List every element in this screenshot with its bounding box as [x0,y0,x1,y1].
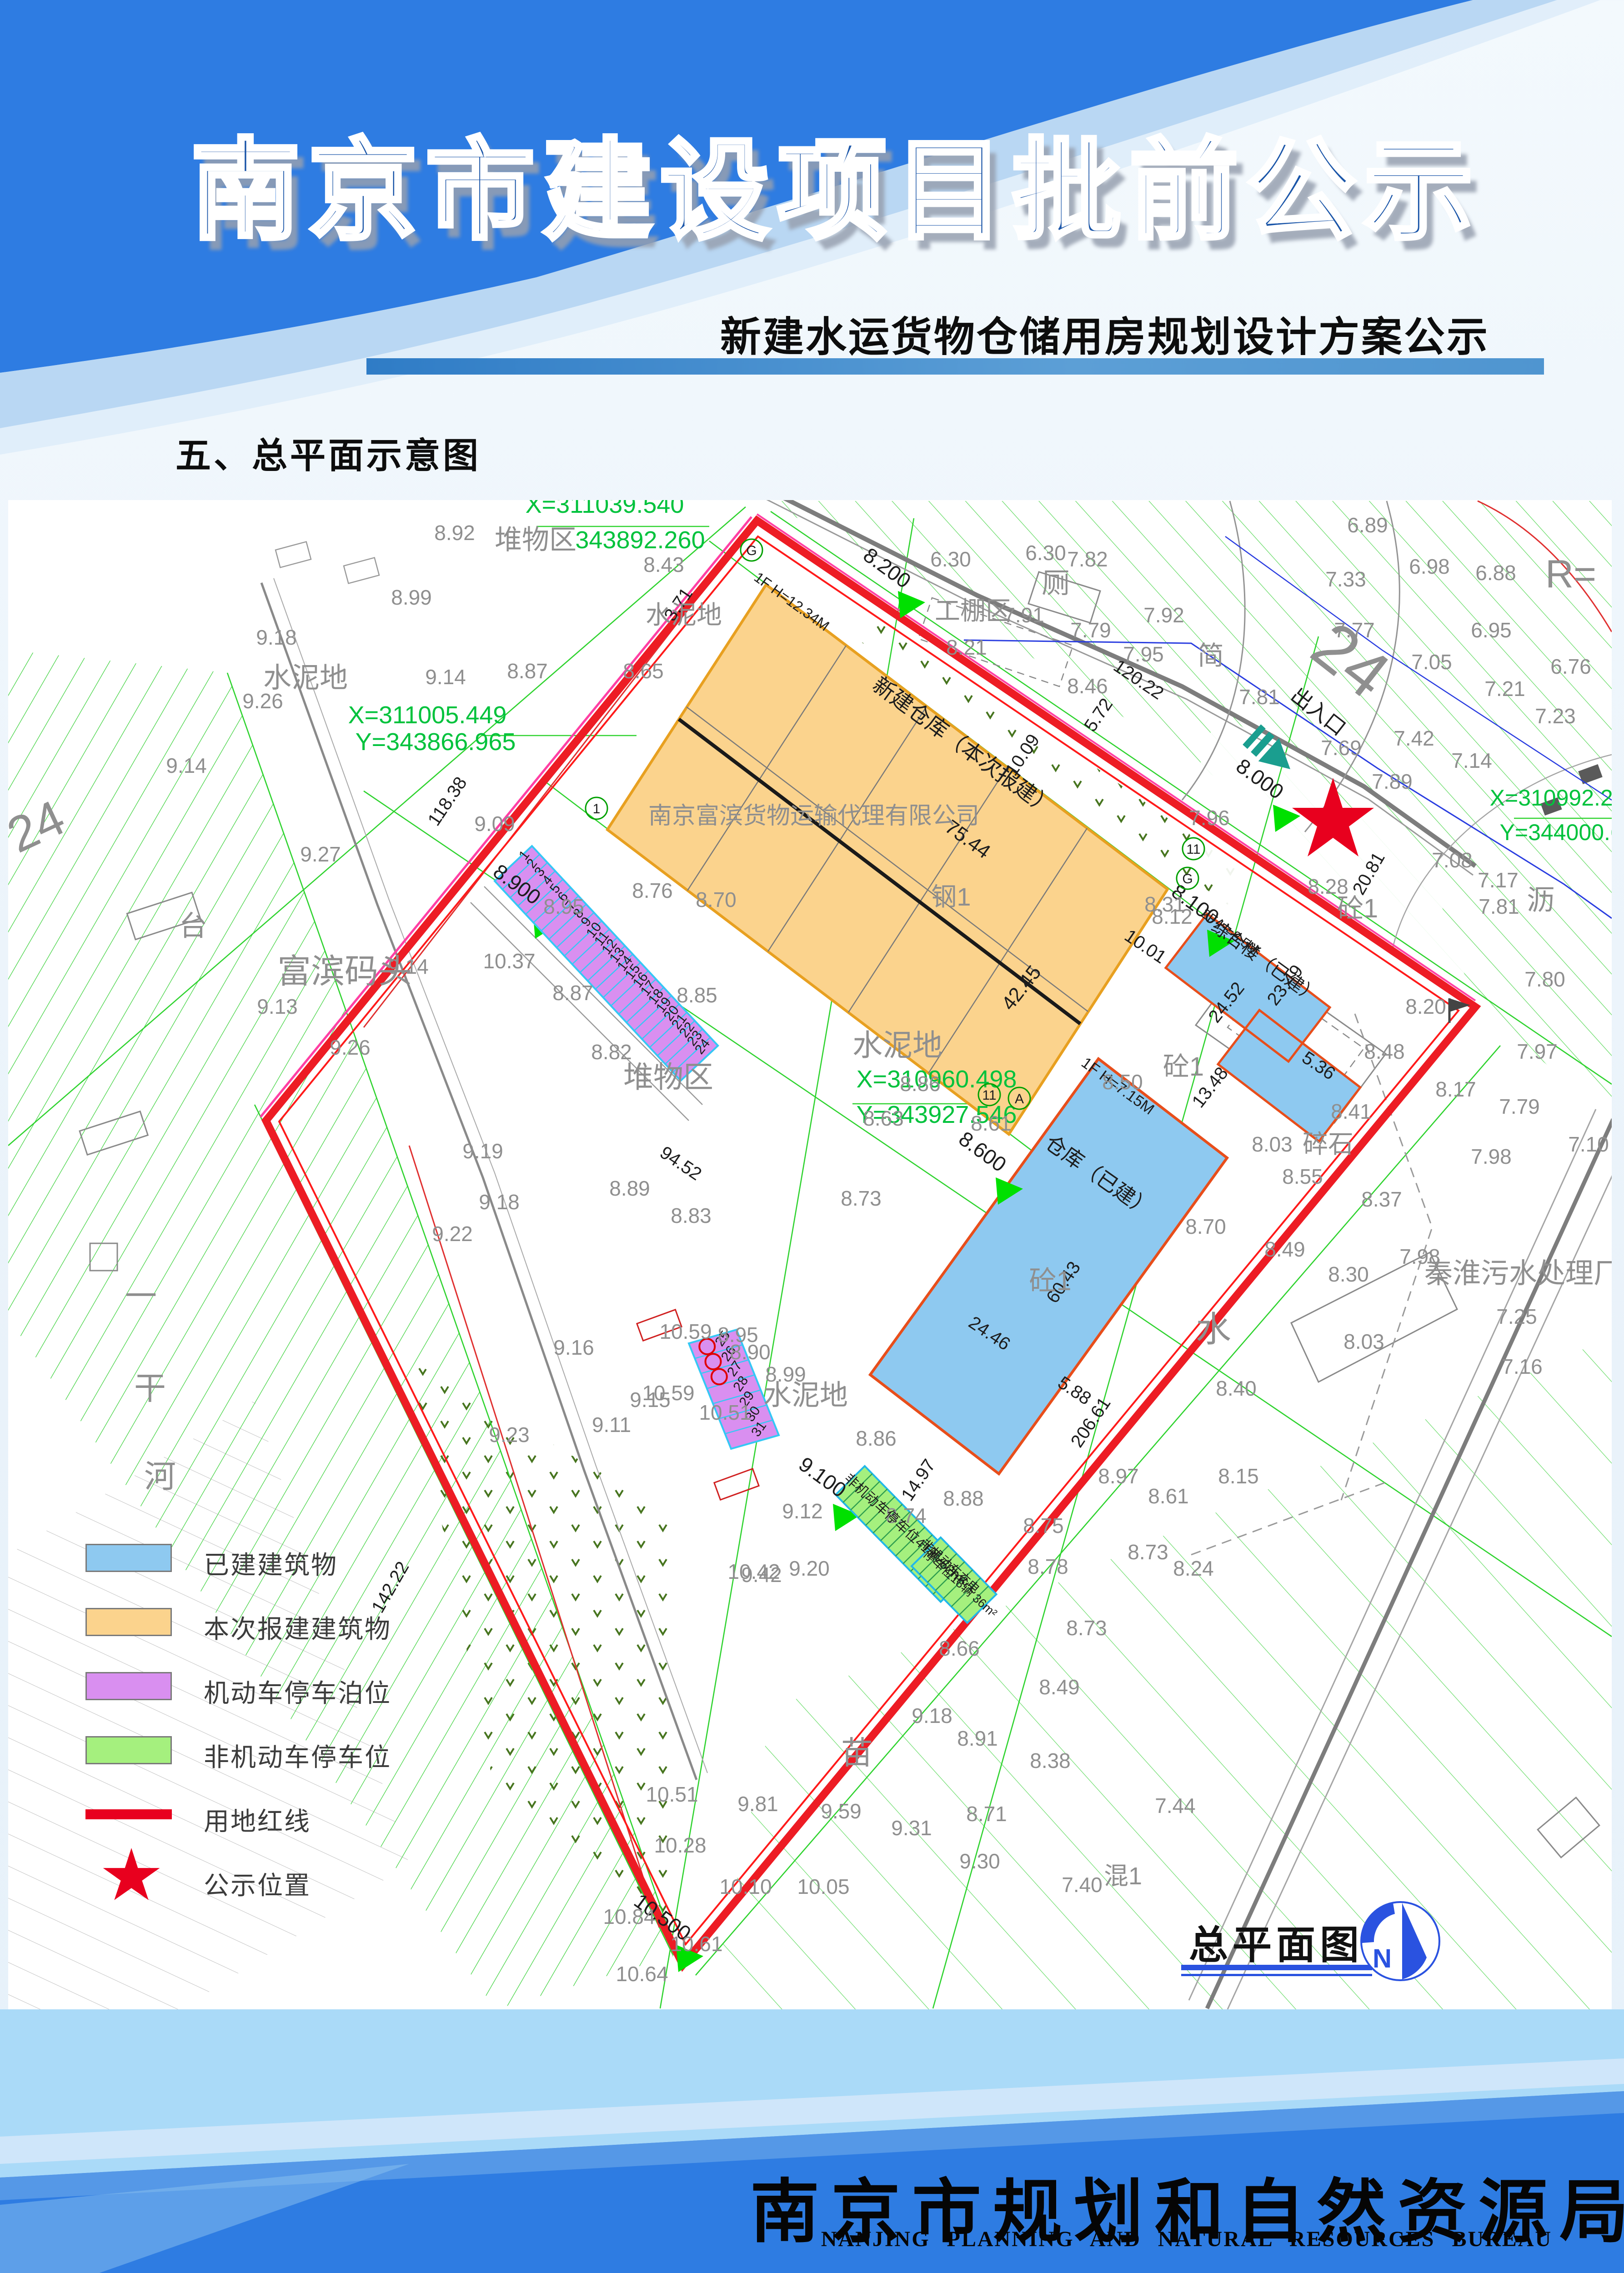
map-label: 8.37 [1361,1187,1402,1211]
map-label: 8.46 [1067,674,1108,698]
legend-swatch-proposed [85,1608,172,1636]
map-label: 10.51 [646,1782,698,1806]
map-label: 8.73 [1066,1616,1107,1640]
map-label: 7.21 [1484,677,1525,701]
map-label: 7.40 [1062,1873,1103,1897]
map-label: 8.97 [1098,1464,1139,1488]
map-label: 8.17 [1435,1077,1476,1101]
svg-text:G: G [1182,871,1193,886]
legend: 已建建筑物 本次报建建筑物 机动车停车泊位 非机动车停车位 用地红线 公示位置 [85,1540,495,1925]
map-label: 7.95 [1123,642,1164,666]
map-label: 干 [134,1371,166,1406]
map-label: 沥 [1527,885,1555,916]
map-label: 8.21 [946,636,987,659]
map-label: 9.31 [891,1816,932,1840]
map-label: 9.26 [242,689,283,713]
map-label: 8.85 [677,983,717,1007]
page-subtitle: 新建水运货物仓储用房规划设计方案公示 [673,304,1537,363]
footer-agency-name-en: NANJING PLANNING AND NATURAL RESOURCES B… [750,2227,1623,2252]
map-label: 7.42 [1393,726,1434,750]
legend-label: 机动车停车泊位 [204,1673,391,1710]
map-label: 苗 [841,1735,873,1771]
map-label: 8.86 [856,1427,897,1450]
map-label: 8.03 [1343,1330,1384,1353]
map-label: 7.17 [1478,868,1519,892]
map-label: 8.70 [1185,1215,1226,1238]
map-label: 9.14 [166,754,207,777]
map-label: 水 [1196,1309,1231,1349]
legend-row-existing: 已建建筑物 [85,1540,495,1604]
map-label: 8.28 [1308,875,1348,898]
map-label: 8.73 [841,1187,882,1210]
map-label: 9.13 [257,995,298,1018]
map-label: 8.82 [591,1040,632,1064]
legend-label: 用地红线 [204,1801,311,1838]
map-label: 8.43 [643,553,684,576]
svg-text:11: 11 [982,1088,996,1103]
map-label: 9.14 [388,955,429,978]
map-label: 简 [1198,641,1224,671]
map-label: 10.42 [727,1560,780,1583]
map-label: 8.50 [1102,1070,1143,1094]
map-label: 7.89 [1372,770,1413,793]
map-label: 秦淮污水处理厂 [1424,1258,1612,1289]
map-label: 7.05 [1411,650,1452,674]
map-label: 混1 [1104,1862,1142,1890]
map-label: 水泥地 [646,601,722,629]
map-label: 8.48 [1364,1040,1405,1063]
map-label: 7.33 [1325,567,1366,591]
map-label: 7.92 [1143,603,1184,627]
map-label: 8.49 [1264,1237,1305,1261]
map-label: 10.28 [654,1833,706,1857]
map-label: 8.03 [1252,1132,1293,1156]
map-label: 8.87 [552,981,593,1005]
map-label: 7.69 [1321,736,1362,760]
map-label: 8.65 [623,659,664,683]
map-label: 9.18 [479,1190,520,1214]
map-label: 14.97 [897,1456,939,1505]
legend-label: 公示位置 [204,1865,311,1902]
map-label: 10.61 [670,1932,722,1956]
map-label: 8.61 [971,1111,1012,1135]
caption-underline [1181,1965,1372,1970]
map-label: 7.14 [1451,749,1492,772]
north-arrow: N [1346,1887,1455,1996]
map-label: 7.97 [1517,1040,1558,1063]
map-label: 8.88 [943,1487,984,1510]
map-label: 7.79 [1070,618,1111,642]
legend-label: 本次报建建筑物 [204,1609,391,1646]
axis-mark: 1 [586,797,607,819]
map-label: 10.51 [699,1401,751,1424]
map-label: 8.76 [632,879,673,902]
map-label: 一 [125,1278,157,1314]
map-label: 6.95 [1471,618,1512,642]
map-label: 8.99 [765,1362,806,1386]
map-label: 7.23 [1535,704,1576,728]
map-label: 河 [144,1459,176,1494]
legend-row-bike-parking: 非机动车停车位 [85,1732,495,1797]
map-label: 南京富滨货物运输代理有限公司 [648,803,979,829]
legend-row-red-line: 用地红线 [85,1797,495,1861]
map-label: 118.38 [424,773,471,830]
map-label: 7.44 [1155,1794,1196,1817]
map-label: 7.81 [1239,685,1280,709]
map-label: 8.89 [609,1177,650,1200]
map-label: 6.89 [1347,513,1388,537]
map-label: 7.96 [1189,806,1230,830]
legend-swatch-bike-parking [85,1736,172,1764]
map-label: 7.91 [1003,603,1044,627]
map-label: 8.55 [1282,1165,1323,1188]
map-label: X=311005.449 [348,701,507,729]
map-label: 9.18 [912,1704,952,1727]
map-label: 9.16 [553,1336,594,1359]
svg-text:G: G [746,543,757,558]
map-label: 9.14 [425,665,466,689]
map-label: 9.27 [300,842,341,866]
map-label: 8.95 [717,1323,758,1347]
map-label: 10.64 [616,1962,668,1986]
map-label: 9.59 [821,1799,862,1823]
map-label: 8.73 [1128,1540,1168,1564]
map-label: 9.15 [630,1388,671,1412]
map-label: 8.61 [1148,1484,1189,1508]
legend-row-notice-star: 公示位置 [85,1861,495,1925]
map-label: 8.63 [863,1106,904,1130]
map-label: 水泥地 [852,1028,942,1062]
map-label: 7.80 [1524,967,1565,991]
map-label: X=310992.230 [1490,785,1612,811]
svg-text:A: A [1015,1091,1024,1106]
map-label: 7.98 [1399,1245,1440,1268]
map-label: 10.59 [659,1320,712,1343]
map-label: 6.30 [1025,541,1066,565]
map-label: 8.86 [900,1072,941,1096]
section-title: 五、总平面示意图 [175,427,481,478]
map-label: 10.84 [603,1905,655,1928]
map-label: X=311039.540 [526,500,684,518]
map-label: 9.19 [462,1139,503,1163]
map-label: 9.18 [256,626,297,649]
map-label: 8.78 [1028,1555,1068,1578]
map-label: 9.26 [330,1036,371,1059]
map-label: 10.01 [1121,926,1170,967]
north-letter: N [1373,1944,1392,1973]
map-label: 6.30 [930,547,971,571]
map-label: 6.88 [1475,561,1516,585]
legend-red-line-sample [85,1809,172,1819]
map-label: 8.15 [1218,1464,1259,1488]
map-label: 9.30 [959,1849,1000,1873]
map-label: 9.23 [489,1423,530,1447]
map-label: 343892.260 [575,526,705,554]
map-label: 6.76 [1550,655,1591,678]
legend-label: 已建建筑物 [204,1545,338,1582]
map-label: Y=343866.965 [356,728,516,756]
map-label: 8.40 [1216,1377,1257,1400]
map-label: 9.09 [474,812,515,836]
map-label: 7.82 [1067,547,1108,571]
page-title: 南京市建设项目批前公示 [191,136,1446,245]
map-label: 7.08 [1432,848,1473,872]
map-label: 9.12 [782,1499,823,1523]
map-label: 砼1 [1163,1052,1204,1081]
map-label: R= [1545,552,1596,596]
map-label: 9.22 [432,1222,473,1246]
map-label: 8.83 [671,1204,712,1227]
map-label: 9.11 [592,1413,631,1437]
map-label: 8.87 [507,659,548,683]
map-label: 6.98 [1409,555,1450,578]
map-label: 7.25 [1496,1305,1537,1328]
map-label: 8.75 [1023,1514,1064,1537]
map-label: 9.81 [737,1792,778,1816]
plan-caption: 总平面图 [1189,1913,1363,1970]
legend-label: 非机动车停车位 [204,1737,391,1774]
map-label: 8.95 [543,895,584,918]
map-label: 8.24 [1173,1557,1214,1580]
svg-text:1: 1 [593,801,601,816]
legend-row-car-parking: 机动车停车泊位 [85,1668,495,1732]
map-label: 8.38 [1030,1749,1071,1772]
legend-swatch-car-parking [85,1672,172,1700]
caption-underline-thin [1181,1974,1372,1976]
map-label: 8.41 [1331,1100,1372,1123]
map-label: 8.31 [1144,892,1185,916]
map-label: 厕 [1042,568,1070,599]
map-label: 8.99 [391,586,432,609]
map-label: 10.37 [483,949,535,973]
map-label: 碎石 [1303,1130,1353,1158]
map-label: 7.16 [1502,1355,1543,1378]
legend-row-proposed: 本次报建建筑物 [85,1604,495,1668]
map-label: 钢1 [931,882,971,911]
map-label: 8.92 [434,521,475,545]
map-label: 8.49 [1039,1675,1080,1699]
map-label: 工棚区 [935,596,1011,625]
map-label: Y=344000.68 [1500,820,1612,845]
map-label: 7.10 [1568,1132,1609,1156]
map-label: 8.30 [1328,1262,1369,1286]
map-label: 砼1 [1029,1266,1071,1296]
map-label: 7.98 [1471,1145,1512,1168]
map-label: 8.91 [957,1727,998,1750]
map-label: 7.77 [1334,618,1375,642]
map-label: 7.79 [1499,1095,1540,1118]
map-label: 8.71 [966,1802,1007,1826]
map-label: 8.70 [696,888,737,911]
subtitle-underline-bar [366,358,1544,375]
svg-text:11: 11 [1186,842,1200,857]
map-label: 堆物区 [495,525,576,555]
map-label: 台 [179,911,207,942]
map-label: 94.52 [656,1142,705,1184]
map-label: 9.20 [789,1557,830,1580]
map-label: 10.10 [719,1875,772,1898]
legend-swatch-existing [85,1544,172,1572]
map-label: 8.20 [1405,995,1446,1018]
map-label: 8.66 [939,1637,980,1660]
map-label: 7.81 [1479,895,1519,918]
map-label: 10.05 [797,1875,849,1898]
axis-mark: G [741,539,762,561]
map-label: 堆物区 [623,1060,713,1094]
